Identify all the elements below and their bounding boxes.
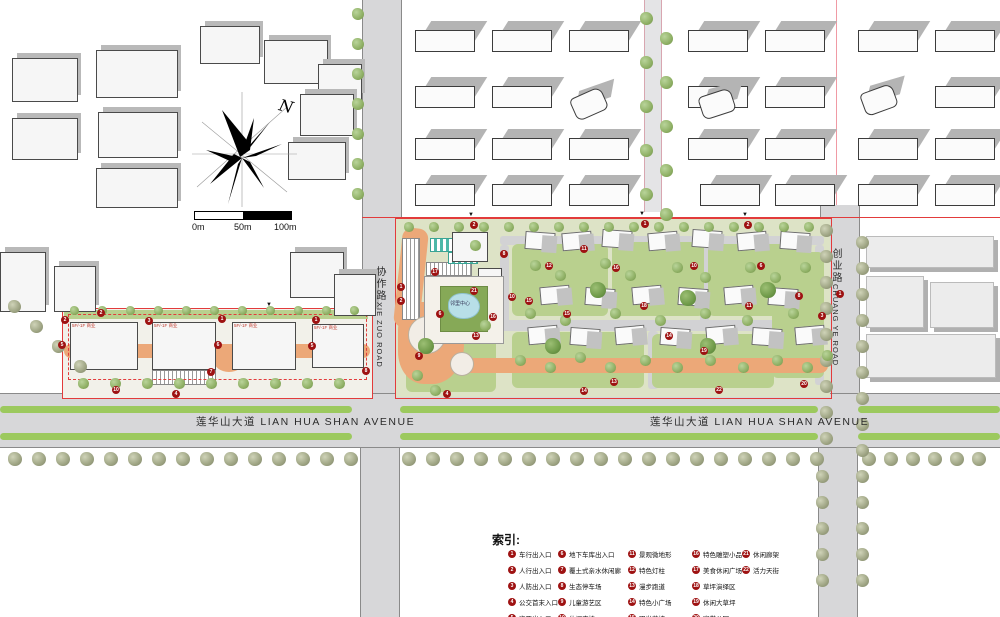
- avenue-median: [0, 406, 352, 413]
- tree-icon: [972, 452, 986, 466]
- tree-icon: [545, 362, 556, 373]
- tree-icon: [344, 452, 358, 466]
- plan-marker: 13: [610, 378, 618, 386]
- building-annotation: 5F/-1F 商业: [314, 326, 338, 331]
- residential-tower: [631, 285, 662, 306]
- slab-building: [935, 138, 995, 160]
- tree-icon: [575, 352, 586, 363]
- tree-icon: [334, 378, 345, 389]
- tree-icon: [820, 380, 833, 393]
- tree-icon: [660, 120, 673, 133]
- tree-icon: [820, 224, 833, 237]
- tree-icon: [680, 290, 696, 306]
- plan-marker: 4: [443, 390, 451, 398]
- tree-icon: [525, 308, 536, 319]
- legend-item-label: 特色小广场: [639, 597, 672, 607]
- tree-icon: [655, 315, 666, 326]
- tree-icon: [816, 574, 829, 587]
- legend-item: 20宽带公园: [692, 610, 742, 617]
- slab-building: [688, 138, 748, 160]
- tree-icon: [555, 270, 566, 281]
- tree-icon: [142, 378, 153, 389]
- plan-marker: 22: [715, 386, 723, 394]
- plan-marker: 1: [397, 283, 405, 291]
- legend-item-label: 美食休闲广场: [703, 565, 742, 575]
- tower-roof: [541, 235, 558, 253]
- tree-icon: [352, 188, 364, 200]
- legend-item: 5次要出入口: [508, 610, 558, 617]
- legend-item-label: 公交首末入口: [519, 597, 558, 607]
- tree-icon: [352, 68, 364, 80]
- tree-icon: [618, 452, 632, 466]
- tree-icon: [78, 378, 89, 389]
- tree-icon: [570, 452, 584, 466]
- tree-icon: [856, 574, 869, 587]
- tower-roof: [648, 288, 665, 306]
- plan-marker: 1: [641, 220, 649, 228]
- tree-icon: [810, 452, 824, 466]
- tree-icon: [296, 452, 310, 466]
- context-building: [12, 58, 78, 102]
- tree-icon: [856, 470, 869, 483]
- tree-icon: [210, 306, 219, 315]
- plan-marker: 2: [61, 316, 69, 324]
- tree-icon: [224, 452, 238, 466]
- slab-building: [492, 184, 552, 206]
- tree-icon: [450, 452, 464, 466]
- tree-icon: [504, 222, 514, 232]
- residential-tower: [659, 327, 690, 347]
- chuangye-road-label-cn: 创业路: [830, 248, 841, 284]
- tree-icon: [625, 270, 636, 281]
- legend-item-label: 休闲大草坪: [703, 597, 736, 607]
- tree-icon: [530, 260, 541, 271]
- legend-item-label: 特色雕塑小品: [703, 549, 742, 559]
- tree-icon: [800, 262, 811, 273]
- plan-marker: 12: [545, 262, 553, 270]
- legend-item: 17美食休闲广场: [692, 562, 742, 578]
- tree-icon: [660, 76, 673, 89]
- residential-tower: [691, 229, 722, 249]
- legend-item-label: 宽带公园: [703, 613, 729, 617]
- slab-building: [569, 30, 629, 52]
- residential-tower: [614, 325, 645, 346]
- neighborhood-center-label: 邻里中心: [450, 300, 470, 307]
- tree-icon: [856, 262, 869, 275]
- legend-item: 6地下车库出入口: [558, 546, 621, 562]
- tree-icon: [700, 272, 711, 283]
- existing-building-footprint: [930, 282, 994, 328]
- tree-icon: [470, 240, 481, 251]
- context-building: [98, 112, 178, 158]
- tower-roof: [676, 331, 693, 349]
- tree-icon: [430, 385, 441, 396]
- residential-tower: [569, 327, 600, 347]
- plan-marker: 1: [312, 316, 320, 324]
- legend-item-label: 景观微地形: [639, 549, 672, 559]
- plan-marker: 9: [415, 352, 423, 360]
- tree-icon: [856, 522, 869, 535]
- legend-item: 1车行出入口: [508, 546, 558, 562]
- tree-icon: [80, 452, 94, 466]
- xiezuo-road-label-en: XIE ZUO ROAD: [375, 302, 390, 368]
- legend-item-number: 18: [692, 582, 700, 590]
- parking-stalls: [402, 238, 420, 320]
- tree-icon: [738, 452, 752, 466]
- legend-item: 10休闲座椅: [558, 610, 621, 617]
- plan-marker: 19: [700, 347, 708, 355]
- tree-icon: [320, 452, 334, 466]
- tree-icon: [454, 222, 464, 232]
- tree-icon: [816, 548, 829, 561]
- legend-item: 7覆土式亲水休闲廊: [558, 562, 621, 578]
- tree-icon: [206, 378, 217, 389]
- legend-column: 21休闲廊架22活力天街: [742, 546, 779, 578]
- tree-icon: [779, 222, 789, 232]
- avenue-label-west: 莲华山大道 LIAN HUA SHAN AVENUE: [196, 414, 415, 429]
- plan-marker: 8: [500, 250, 508, 258]
- legend-item-number: 13: [628, 582, 636, 590]
- legend-item: 15阳光草坡: [628, 610, 672, 617]
- residential-tower: [561, 231, 592, 252]
- building-annotation: 5F/-1F 商业: [72, 324, 96, 329]
- legend-item: 11景观微地形: [628, 546, 672, 562]
- slab-building: [492, 30, 552, 52]
- tree-icon: [604, 222, 614, 232]
- tree-icon: [238, 306, 247, 315]
- plan-marker: 1: [836, 290, 844, 298]
- tree-icon: [714, 452, 728, 466]
- tree-icon: [152, 452, 166, 466]
- slab-building: [415, 86, 475, 108]
- tree-icon: [480, 320, 491, 331]
- legend-item-number: 7: [558, 566, 566, 574]
- plan-marker: 16: [612, 264, 620, 272]
- tree-icon: [856, 340, 869, 353]
- tower-roof: [618, 233, 635, 251]
- entrance-arrow-icon: ▼: [266, 302, 272, 308]
- legend-item: 22活力天街: [742, 562, 779, 578]
- tree-icon: [640, 355, 651, 366]
- slab-building: [700, 184, 760, 206]
- residential-tower: [601, 229, 632, 249]
- entrance-arrow-icon: ▼: [639, 211, 645, 217]
- tower-roof: [768, 331, 785, 349]
- avenue-median: [400, 433, 818, 440]
- plan-marker: 6: [436, 310, 444, 318]
- tree-icon: [8, 452, 22, 466]
- tree-icon: [788, 308, 799, 319]
- tree-icon: [660, 208, 673, 221]
- tree-icon: [272, 452, 286, 466]
- tree-icon: [856, 444, 869, 457]
- tree-icon: [856, 288, 869, 301]
- tree-icon: [479, 222, 489, 232]
- tree-icon: [672, 362, 683, 373]
- tree-icon: [8, 300, 21, 313]
- plan-marker: 13: [472, 332, 480, 340]
- tree-icon: [248, 452, 262, 466]
- slab-building: [765, 138, 825, 160]
- tree-icon: [679, 222, 689, 232]
- plan-marker: 14: [580, 387, 588, 395]
- plan-marker: 2: [744, 221, 752, 229]
- legend-item-label: 儿童游艺区: [569, 597, 602, 607]
- tree-icon: [640, 188, 653, 201]
- residential-tower: [524, 231, 555, 251]
- tree-icon: [74, 360, 87, 373]
- tree-icon: [350, 306, 359, 315]
- tree-icon: [640, 12, 653, 25]
- slab-building: [569, 138, 629, 160]
- slab-building: [415, 184, 475, 206]
- tree-icon: [884, 452, 898, 466]
- tree-icon: [352, 128, 364, 140]
- tree-icon: [760, 282, 776, 298]
- legend-item-label: 休闲座椅: [569, 613, 595, 617]
- legend-item: 13漫步跑道: [628, 578, 672, 594]
- tree-icon: [816, 496, 829, 509]
- tree-icon: [856, 366, 869, 379]
- tree-icon: [294, 306, 303, 315]
- legend-item-label: 生态停车场: [569, 581, 602, 591]
- legend-column: 6地下车库出入口7覆土式亲水休闲廊8生态停车场9儿童游艺区10休闲座椅: [558, 546, 621, 617]
- existing-building-footprint: [866, 334, 996, 378]
- tree-icon: [404, 222, 414, 232]
- legend-item-number: 9: [558, 598, 566, 606]
- tower-roof: [556, 288, 573, 306]
- tree-icon: [629, 222, 639, 232]
- plan-marker: 6: [214, 341, 222, 349]
- xiezuo-road-label-cn: 协作路: [374, 266, 385, 302]
- tree-icon: [672, 262, 683, 273]
- tree-icon: [302, 378, 313, 389]
- tree-icon: [176, 452, 190, 466]
- tree-icon: [820, 432, 833, 445]
- tree-icon: [352, 158, 364, 170]
- tree-icon: [126, 306, 135, 315]
- tree-icon: [426, 452, 440, 466]
- legend-item: 21休闲廊架: [742, 546, 779, 562]
- legend-item-number: 21: [742, 550, 750, 558]
- tree-icon: [402, 452, 416, 466]
- plan-marker: 3: [145, 317, 153, 325]
- tree-icon: [322, 306, 331, 315]
- tree-icon: [660, 164, 673, 177]
- tree-icon: [856, 314, 869, 327]
- tree-icon: [352, 98, 364, 110]
- tree-icon: [856, 236, 869, 249]
- tower-roof: [586, 331, 603, 349]
- tree-icon: [906, 452, 920, 466]
- legend-item-label: 人行出入口: [519, 565, 552, 575]
- tree-icon: [200, 452, 214, 466]
- existing-building-footprint: [866, 236, 994, 268]
- tree-icon: [594, 452, 608, 466]
- legend-item-number: 1: [508, 550, 516, 558]
- tree-icon: [786, 452, 800, 466]
- tower-roof: [722, 328, 739, 346]
- plan-marker: 11: [580, 245, 588, 253]
- tree-icon: [856, 548, 869, 561]
- tree-icon: [772, 355, 783, 366]
- plan-marker: 15: [525, 297, 533, 305]
- site-plan-canvas: 5F/-1F 商业 5F/-1F 商业 5F/-1F 商业 5F/-1F 商业 …: [0, 0, 1000, 617]
- plan-marker: 10: [508, 293, 516, 301]
- slab-building: [492, 86, 552, 108]
- residential-tower: [751, 327, 782, 347]
- context-building: [0, 252, 46, 312]
- tree-icon: [654, 222, 664, 232]
- slab-building: [492, 138, 552, 160]
- avenue-median: [0, 433, 352, 440]
- slab-building: [688, 30, 748, 52]
- legend-item: 14特色小广场: [628, 594, 672, 610]
- avenue-median: [858, 406, 1000, 413]
- legend-item-number: 4: [508, 598, 516, 606]
- tree-icon: [700, 308, 711, 319]
- legend-column: 16特色雕塑小品17美食休闲广场18草坪演绎区19休闲大草坪20宽带公园: [692, 546, 742, 617]
- slab-building: [415, 30, 475, 52]
- legend-item-label: 漫步跑道: [639, 581, 665, 591]
- tree-icon: [729, 222, 739, 232]
- tree-icon: [412, 370, 423, 381]
- legend-item: 4公交首末入口: [508, 594, 558, 610]
- tree-icon: [554, 222, 564, 232]
- tree-icon: [642, 452, 656, 466]
- legend: 索引: 1车行出入口2人行出入口3人防出入口4公交首末入口5次要出入口6地下车库…: [492, 531, 802, 548]
- slab-building: [935, 30, 995, 52]
- tree-icon: [950, 452, 964, 466]
- tree-icon: [128, 452, 142, 466]
- tower-roof: [708, 233, 725, 251]
- tree-icon: [429, 222, 439, 232]
- chuangye-road-label: 创业路CHUANG YE ROAD: [830, 248, 840, 366]
- legend-item-label: 次要出入口: [519, 613, 552, 617]
- plaza-circle-small: [450, 352, 474, 376]
- tree-icon: [745, 262, 756, 273]
- tree-icon: [928, 452, 942, 466]
- plan-marker: 16: [489, 313, 497, 321]
- tree-icon: [610, 308, 621, 319]
- legend-item: 19休闲大草坪: [692, 594, 742, 610]
- plan-marker: 21: [470, 287, 478, 295]
- context-building: [96, 50, 178, 98]
- legend-item-label: 活力天街: [753, 565, 779, 575]
- legend-item-label: 覆土式亲水休闲廊: [569, 565, 621, 575]
- tree-icon: [856, 392, 869, 405]
- tree-icon: [104, 452, 118, 466]
- legend-column: 1车行出入口2人行出入口3人防出入口4公交首末入口5次要出入口: [508, 546, 558, 617]
- tower-roof: [631, 328, 648, 346]
- tower-roof: [796, 235, 813, 253]
- plan-marker: 7: [207, 368, 215, 376]
- scale-label-50: 50m: [234, 222, 252, 232]
- legend-item: 8生态停车场: [558, 578, 621, 594]
- legend-item-number: 22: [742, 566, 750, 574]
- plan-marker: 2: [470, 221, 478, 229]
- tree-icon: [515, 355, 526, 366]
- legend-item-number: 2: [508, 566, 516, 574]
- tree-icon: [32, 452, 46, 466]
- legend-item-number: 19: [692, 598, 700, 606]
- slab-building: [935, 184, 995, 206]
- legend-item: 12特色灯柱: [628, 562, 672, 578]
- xiezuo-road-label: 协作路XIE ZUO ROAD: [374, 266, 384, 368]
- tree-icon: [690, 452, 704, 466]
- plan-marker: 20: [800, 380, 808, 388]
- avenue-median: [858, 433, 1000, 440]
- tree-icon: [705, 355, 716, 366]
- legend-item-label: 特色灯柱: [639, 565, 665, 575]
- legend-item-number: 8: [558, 582, 566, 590]
- plan-marker: 18: [640, 302, 648, 310]
- tree-icon: [640, 100, 653, 113]
- context-building: [12, 118, 78, 160]
- tree-icon: [70, 306, 79, 315]
- residential-tower: [539, 285, 570, 306]
- tree-icon: [352, 38, 364, 50]
- tree-icon: [579, 222, 589, 232]
- tower-roof: [664, 234, 681, 252]
- tree-icon: [762, 452, 776, 466]
- scale-label-0: 0m: [192, 222, 205, 232]
- plan-marker: 10: [690, 262, 698, 270]
- tree-icon: [474, 452, 488, 466]
- plan-marker: 2: [97, 309, 105, 317]
- plan-marker: 4: [172, 390, 180, 398]
- plan-marker: 2: [397, 297, 405, 305]
- xiezuo-road-south: [360, 446, 400, 617]
- plan-marker: 15: [563, 310, 571, 318]
- tree-icon: [704, 222, 714, 232]
- tree-icon: [770, 272, 781, 283]
- tree-icon: [546, 452, 560, 466]
- legend-item: 16特色雕塑小品: [692, 546, 742, 562]
- slab-building: [775, 184, 835, 206]
- tree-icon: [590, 282, 606, 298]
- slab-building: [569, 184, 629, 206]
- slab-building: [765, 86, 825, 108]
- legend-item-label: 休闲廊架: [753, 549, 779, 559]
- legend-item: 2人行出入口: [508, 562, 558, 578]
- slab-building: [415, 138, 475, 160]
- tree-icon: [522, 452, 536, 466]
- plan-marker: 14: [665, 332, 673, 340]
- avenue-median: [400, 406, 818, 413]
- slab-building: [858, 184, 918, 206]
- tree-icon: [738, 362, 749, 373]
- tree-icon: [545, 338, 561, 354]
- entrance-arrow-icon: ▼: [742, 212, 748, 218]
- tree-icon: [802, 362, 813, 373]
- tree-icon: [56, 452, 70, 466]
- plan-marker: 8: [362, 367, 370, 375]
- plan-marker: 1: [218, 315, 226, 323]
- plan-marker: 6: [757, 262, 765, 270]
- context-building: [200, 26, 260, 64]
- scale-bar: [194, 211, 292, 220]
- tree-icon: [174, 378, 185, 389]
- plan-marker: 10: [112, 386, 120, 394]
- legend-item-label: 草坪演绎区: [703, 581, 736, 591]
- plan-marker: 3: [818, 312, 826, 320]
- legend-item-number: 3: [508, 582, 516, 590]
- tower-roof: [694, 291, 711, 309]
- legend-item-number: 6: [558, 550, 566, 558]
- tree-icon: [666, 452, 680, 466]
- tree-icon: [605, 362, 616, 373]
